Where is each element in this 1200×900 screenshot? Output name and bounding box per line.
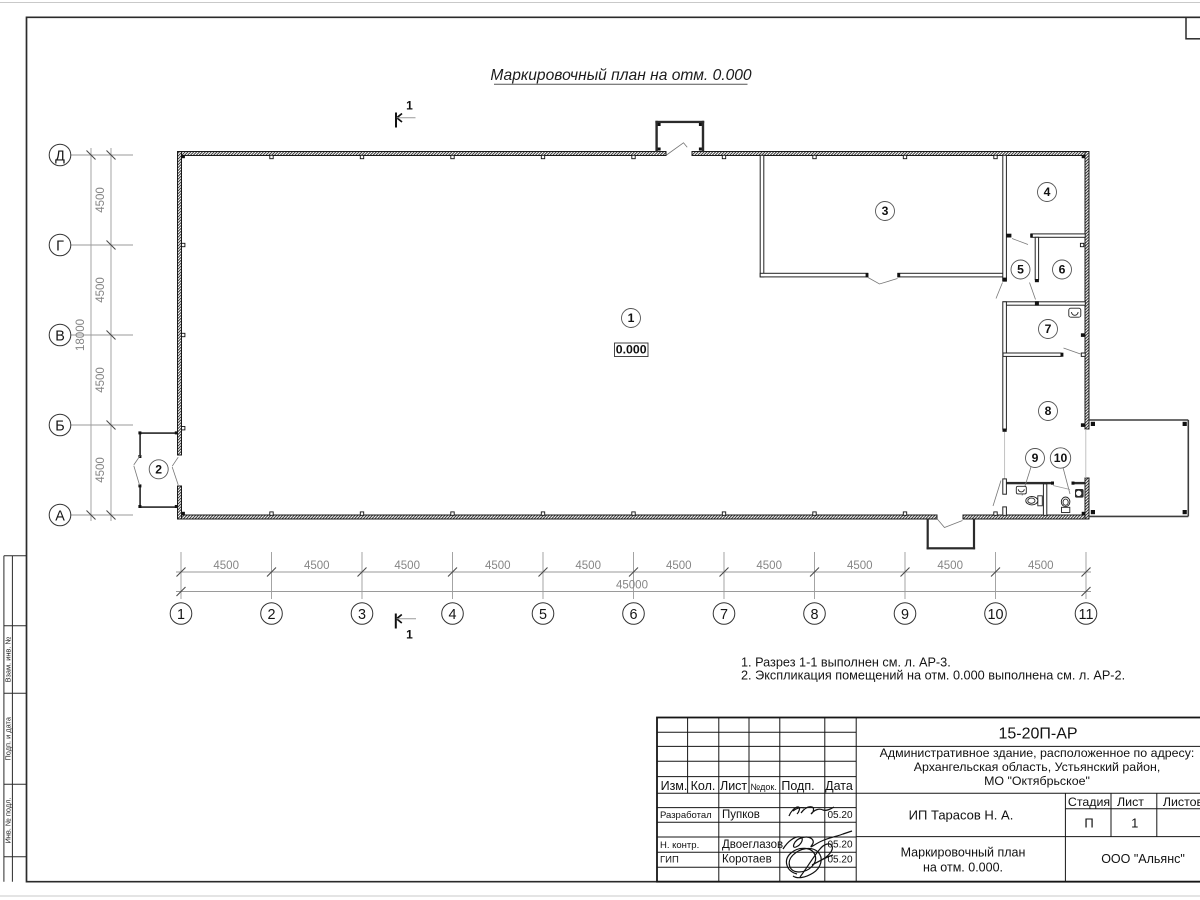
svg-text:1. Разрез 1-1 выполнен см. л.: 1. Разрез 1-1 выполнен см. л. АР-3. <box>741 656 951 670</box>
svg-text:5: 5 <box>1017 263 1024 277</box>
svg-text:Н. контр.: Н. контр. <box>660 840 699 851</box>
svg-text:П: П <box>1084 816 1093 831</box>
svg-text:8: 8 <box>810 607 818 623</box>
svg-text:1: 1 <box>406 628 413 642</box>
svg-text:11: 11 <box>1079 607 1094 623</box>
svg-text:Коротаев: Коротаев <box>722 854 772 866</box>
svg-text:Инв. № подл.: Инв. № подл. <box>4 797 13 843</box>
svg-text:А: А <box>55 508 65 524</box>
svg-text:ООО "Альянс": ООО "Альянс" <box>1101 852 1185 866</box>
svg-text:4500: 4500 <box>304 560 330 572</box>
svg-text:4: 4 <box>448 607 456 623</box>
svg-text:ИП Тарасов Н. А.: ИП Тарасов Н. А. <box>909 808 1014 823</box>
svg-text:18000: 18000 <box>75 319 87 351</box>
svg-text:3: 3 <box>358 607 366 623</box>
svg-text:10: 10 <box>987 607 1003 623</box>
svg-text:4500: 4500 <box>213 560 239 572</box>
svg-text:2: 2 <box>267 607 275 623</box>
svg-text:4500: 4500 <box>485 560 511 572</box>
svg-text:Административное здание, распо: Административное здание, расположенное п… <box>880 746 1195 760</box>
svg-text:4500: 4500 <box>1028 560 1054 572</box>
svg-text:1: 1 <box>177 607 185 623</box>
svg-text:4: 4 <box>1044 185 1051 199</box>
svg-text:10: 10 <box>1054 451 1068 465</box>
svg-text:1: 1 <box>628 311 635 325</box>
svg-text:на отм. 0.000.: на отм. 0.000. <box>923 861 1003 875</box>
svg-text:0.000: 0.000 <box>616 342 647 356</box>
svg-text:Б: Б <box>55 418 64 434</box>
svg-text:4500: 4500 <box>847 560 873 572</box>
svg-text:9: 9 <box>1032 451 1039 465</box>
svg-text:3: 3 <box>882 204 889 218</box>
svg-text:Дата: Дата <box>825 779 853 793</box>
svg-text:Лист: Лист <box>1117 795 1144 809</box>
svg-text:Г: Г <box>56 238 64 254</box>
svg-text:В: В <box>55 328 65 344</box>
svg-text:4500: 4500 <box>95 277 107 303</box>
svg-text:6: 6 <box>1059 263 1066 277</box>
svg-text:8: 8 <box>1045 404 1052 418</box>
svg-text:Двоеглазов: Двоеглазов <box>722 839 783 851</box>
svg-text:4500: 4500 <box>95 367 107 393</box>
svg-text:9: 9 <box>901 607 909 623</box>
svg-text:Лист: Лист <box>720 779 747 793</box>
svg-text:4500: 4500 <box>95 457 107 483</box>
svg-text:Кол.: Кол. <box>691 779 716 793</box>
svg-text:Маркировочный план: Маркировочный план <box>901 846 1026 860</box>
svg-text:15-20П-АР: 15-20П-АР <box>998 726 1077 743</box>
svg-text:1: 1 <box>406 99 413 113</box>
svg-text:4500: 4500 <box>575 560 601 572</box>
svg-text:2: 2 <box>155 463 162 477</box>
svg-text:Д: Д <box>55 148 65 164</box>
svg-text:1: 1 <box>1131 816 1138 831</box>
svg-text:Взам. инв. №: Взам. инв. № <box>4 637 13 683</box>
svg-text:Архангельская область, Устьянс: Архангельская область, Устьянский район, <box>914 760 1161 774</box>
svg-text:7: 7 <box>1045 322 1052 336</box>
svg-text:МО "Октябрьское": МО "Октябрьское" <box>984 774 1090 788</box>
svg-text:Стадия: Стадия <box>1068 795 1110 809</box>
svg-text:ГИП: ГИП <box>660 855 679 866</box>
svg-text:6: 6 <box>629 607 637 623</box>
svg-text:4500: 4500 <box>394 560 420 572</box>
svg-text:4500: 4500 <box>95 187 107 213</box>
svg-text:45000: 45000 <box>616 580 648 592</box>
svg-text:№док.: №док. <box>751 782 777 792</box>
svg-text:2. Экспликация помещений на от: 2. Экспликация помещений на отм. 0.000 в… <box>741 669 1125 683</box>
svg-text:Подп.: Подп. <box>781 779 814 793</box>
svg-text:Маркировочный план на отм. 0.0: Маркировочный план на отм. 0.000 <box>490 67 752 84</box>
svg-text:Листов: Листов <box>1163 795 1200 809</box>
svg-text:Разработал: Разработал <box>660 810 712 821</box>
svg-text:4500: 4500 <box>666 560 692 572</box>
svg-text:Изм.: Изм. <box>661 779 688 793</box>
svg-text:4500: 4500 <box>756 560 782 572</box>
svg-text:Пупков: Пупков <box>722 809 760 821</box>
svg-text:Подп. и дата: Подп. и дата <box>4 716 13 760</box>
svg-text:7: 7 <box>720 607 728 623</box>
svg-text:4500: 4500 <box>937 560 963 572</box>
svg-text:05.20: 05.20 <box>827 810 852 821</box>
svg-text:5: 5 <box>539 607 547 623</box>
